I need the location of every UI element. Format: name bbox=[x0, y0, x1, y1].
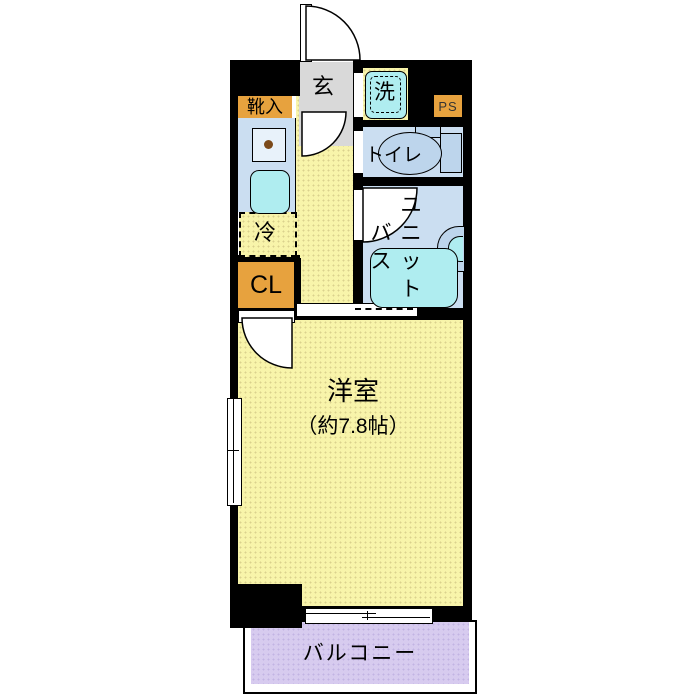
unit-bath-char: ス bbox=[366, 246, 396, 274]
shoe-cabinet-label: 靴入 bbox=[247, 98, 283, 116]
toilet-tank bbox=[440, 133, 462, 173]
unit-bath-char: ユ bbox=[396, 190, 426, 218]
genkan-door-arc bbox=[302, 112, 346, 156]
closet: CL bbox=[238, 262, 294, 308]
unit-bath-char: ニ bbox=[396, 218, 426, 246]
toilet-label: トイレ bbox=[365, 146, 422, 165]
pipe-space-label: PS bbox=[438, 100, 457, 113]
stove-burner bbox=[252, 128, 286, 162]
shoe-cabinet: 靴入 bbox=[238, 96, 292, 118]
genkan-label: 玄 bbox=[312, 76, 334, 98]
closet-label: CL bbox=[250, 273, 282, 298]
door-swing-arcs bbox=[0, 0, 695, 695]
unit-bath-char: ト bbox=[396, 274, 426, 302]
unit-bath-char bbox=[366, 190, 396, 218]
front-door-arc bbox=[306, 6, 360, 60]
main-room-size: （約7.8帖） bbox=[258, 416, 448, 437]
burner-dot bbox=[264, 140, 273, 149]
room-door-arc bbox=[242, 318, 292, 368]
unit-bath-char: バ bbox=[366, 218, 396, 246]
floor-plan: バルコニー bbox=[0, 0, 695, 695]
main-room-label: 洋室 bbox=[258, 378, 448, 404]
unit-bath-char: ッ bbox=[396, 246, 426, 274]
fridge-label: 冷 bbox=[254, 222, 276, 244]
pipe-space: PS bbox=[434, 95, 462, 117]
main-room-label-block: 洋室 （約7.8帖） bbox=[258, 378, 448, 437]
kitchen-sink bbox=[250, 170, 290, 214]
washer-label: 洗 bbox=[374, 82, 395, 103]
unit-bath-label: ユ バ ニ ス ッ ト bbox=[366, 190, 426, 302]
unit-bath-char bbox=[366, 274, 396, 302]
